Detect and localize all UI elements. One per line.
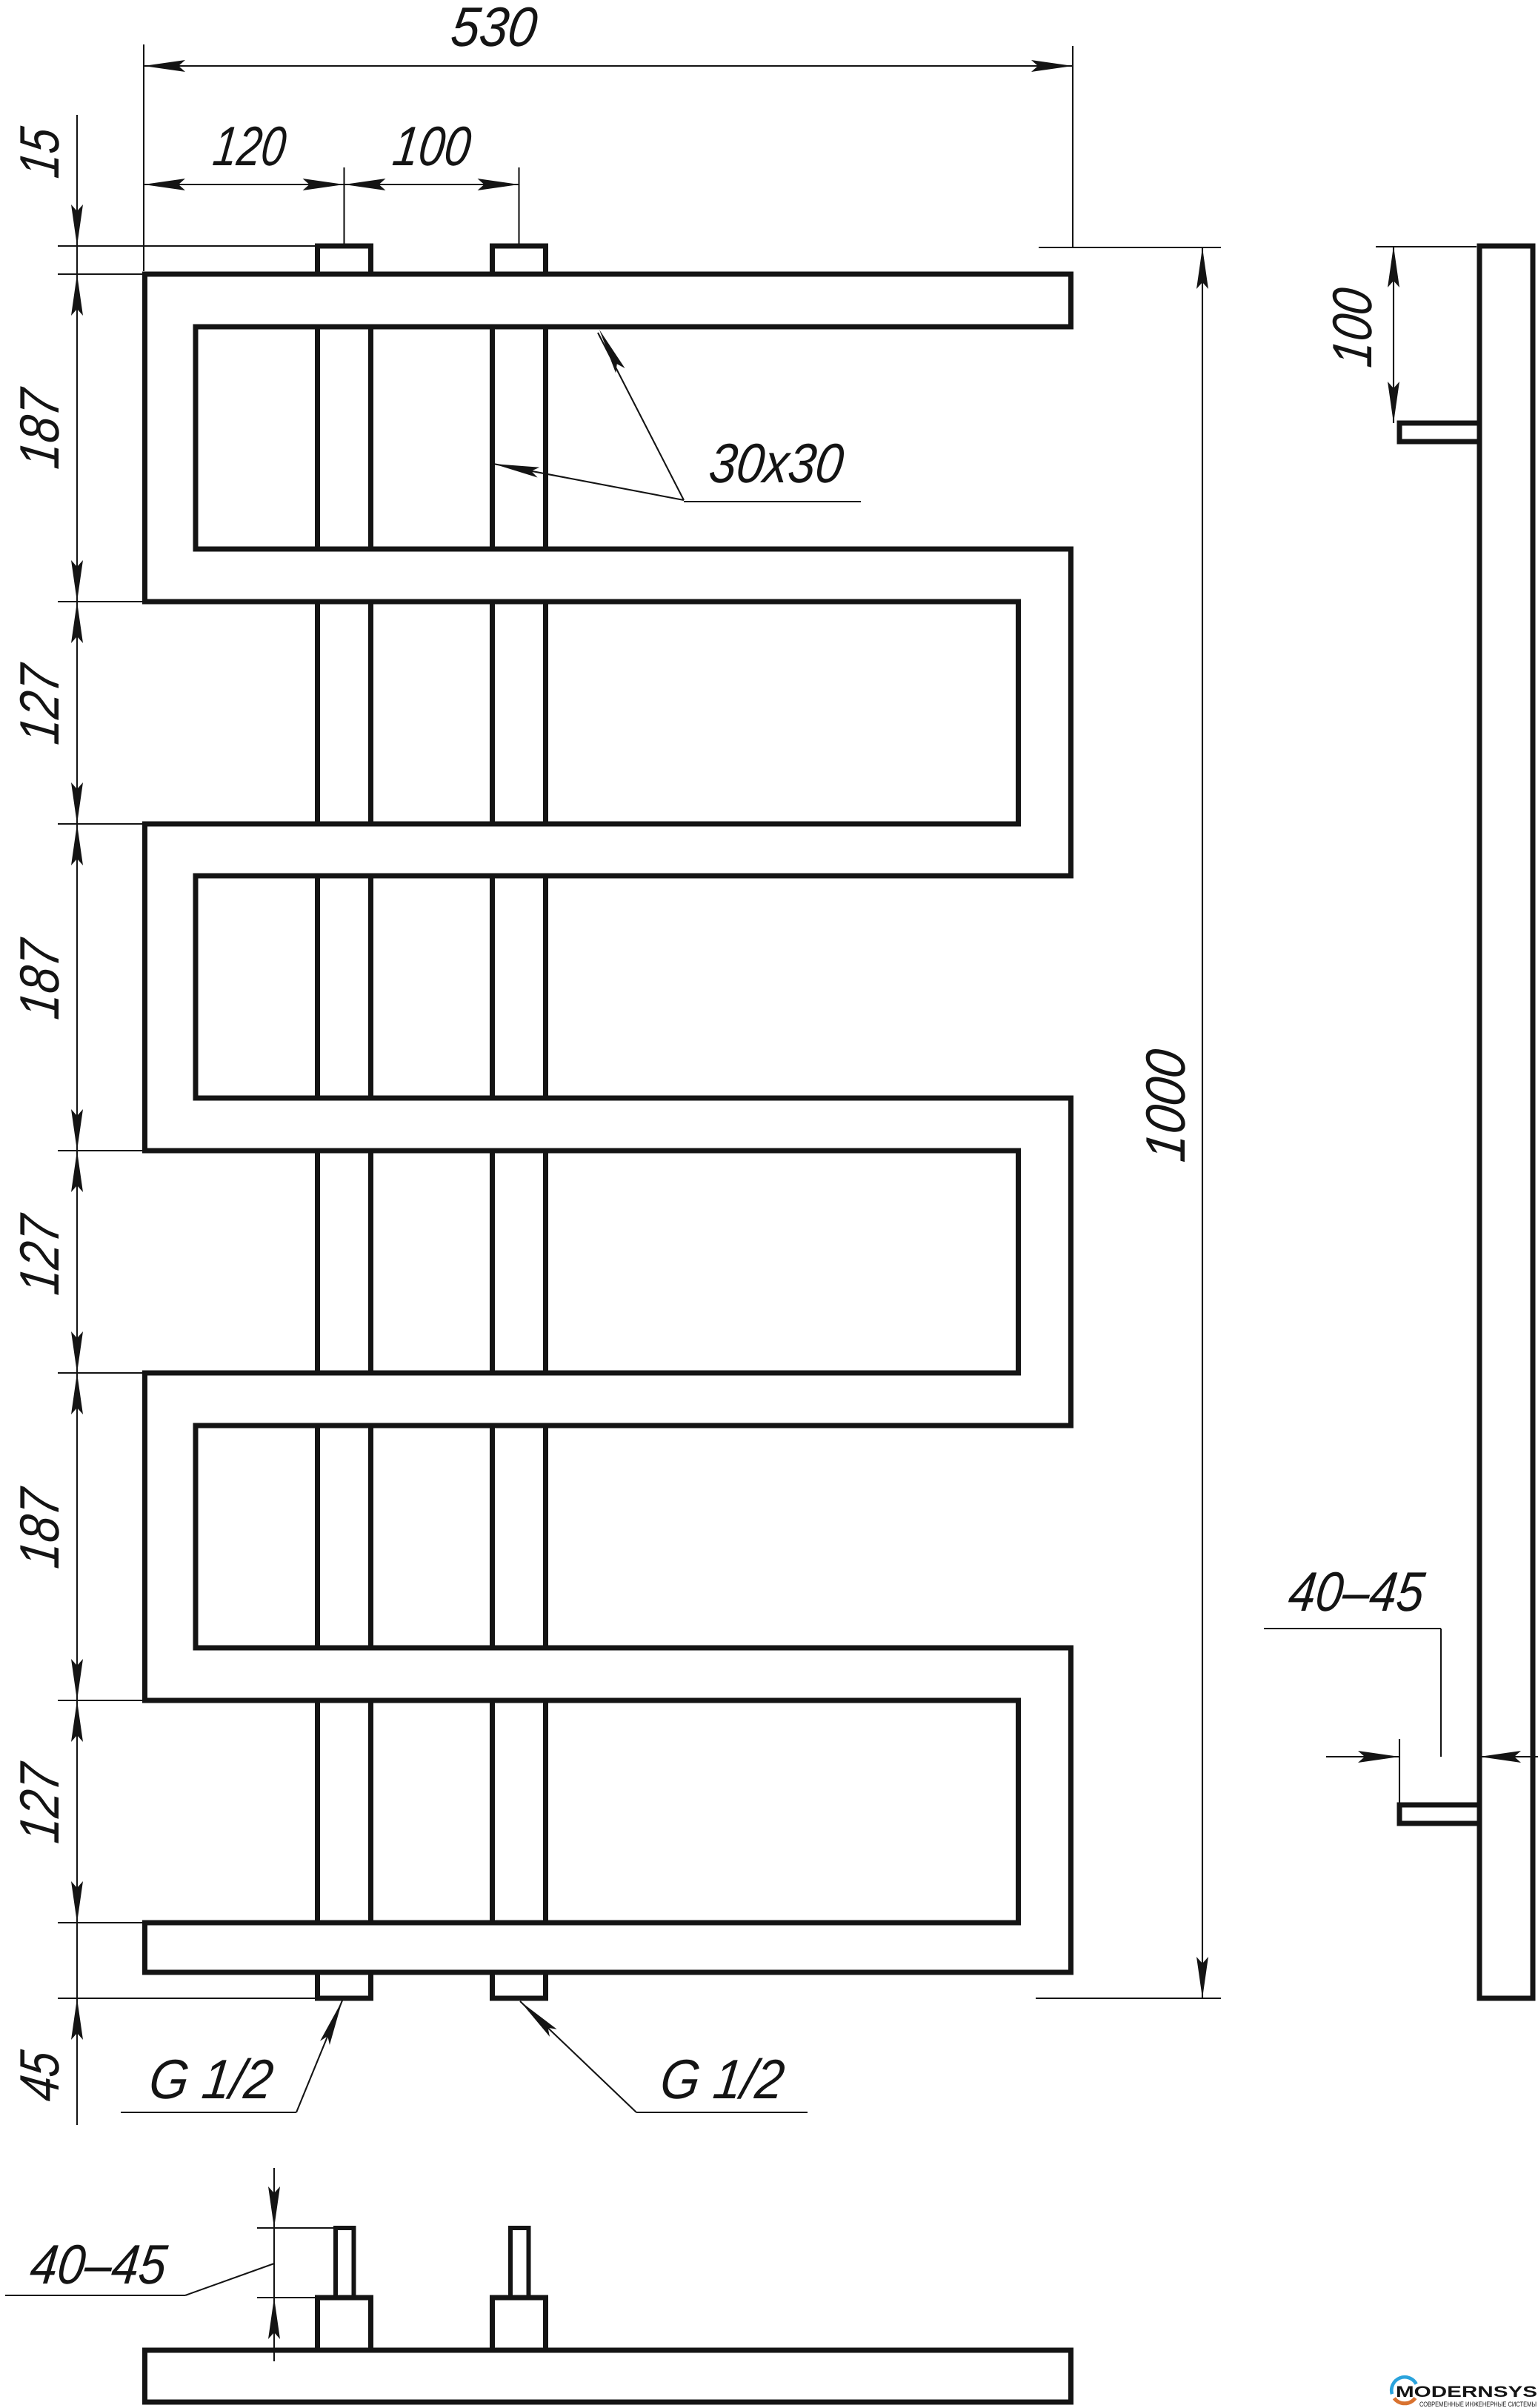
svg-text:100: 100 — [390, 115, 474, 177]
svg-text:40–45: 40–45 — [27, 2233, 171, 2295]
svg-text:187: 187 — [8, 385, 70, 472]
svg-text:15: 15 — [8, 124, 70, 181]
svg-text:45: 45 — [8, 2047, 70, 2104]
svg-text:40–45: 40–45 — [1285, 1560, 1428, 1623]
svg-text:G 1/2: G 1/2 — [657, 2048, 788, 2110]
svg-text:530: 530 — [448, 0, 541, 58]
svg-text:127: 127 — [8, 660, 70, 748]
svg-text:187: 187 — [8, 1484, 70, 1571]
svg-text:G 1/2: G 1/2 — [146, 2048, 276, 2110]
svg-text:MODERNSYS: MODERNSYS — [1396, 2384, 1537, 2401]
svg-text:127: 127 — [8, 1211, 70, 1298]
svg-text:187: 187 — [8, 935, 70, 1022]
svg-text:100: 100 — [1321, 285, 1383, 370]
svg-text:СОВРЕМЕННЫЕ ИНЖЕНЕРНЫЕ СИСТЕМЫ: СОВРЕМЕННЫЕ ИНЖЕНЕРНЫЕ СИСТЕМЫ — [1419, 2401, 1537, 2408]
svg-text:127: 127 — [8, 1759, 70, 1846]
svg-text:1000: 1000 — [1134, 1046, 1196, 1165]
svg-text:120: 120 — [210, 115, 290, 177]
svg-text:30x30: 30x30 — [706, 432, 847, 494]
